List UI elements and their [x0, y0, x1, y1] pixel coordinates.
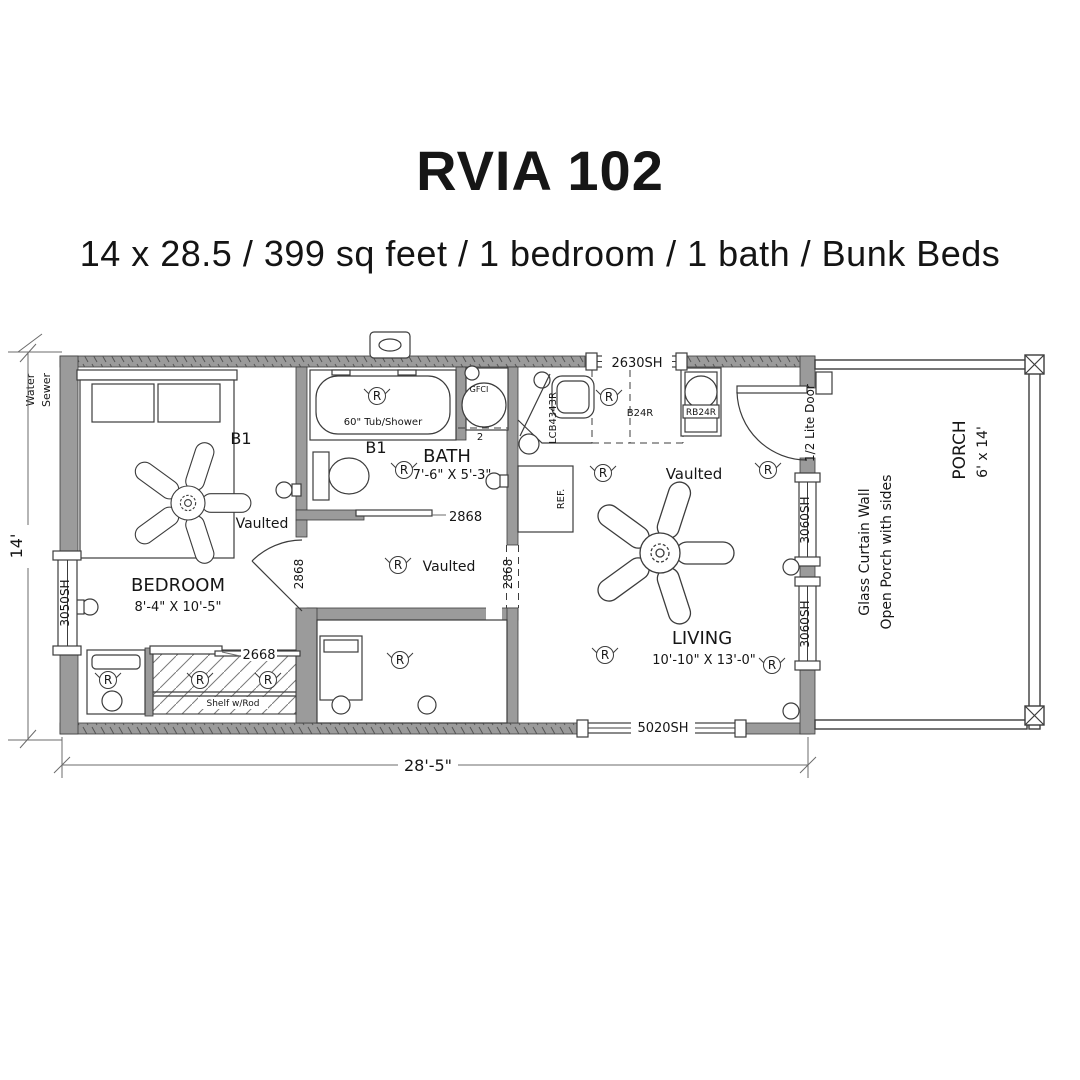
porch-size-label: 6' x 14' — [975, 426, 991, 478]
gfci-label: GFCI — [470, 385, 489, 394]
porch-label: PORCH — [950, 420, 970, 479]
bath-size-label: 7'-6" X 5'-3" — [413, 468, 492, 483]
fridge-label: REF. — [556, 489, 567, 510]
porch-post-top — [1025, 355, 1044, 374]
bedroom-vaulted-label: Vaulted — [236, 516, 289, 532]
bath-dim-note: 2 — [477, 432, 483, 443]
bath-door-label: 2868 — [449, 510, 482, 525]
hall: Vaulted 2868 — [385, 545, 519, 608]
kitchen-window: 2630SH — [586, 353, 687, 371]
closet: Shelf w/Rod 2668 — [150, 646, 300, 714]
closet-door-label: 2668 — [242, 648, 275, 663]
sewer-label: Sewer — [40, 373, 53, 408]
living-window-upper-label: 3060SH — [798, 496, 812, 543]
porch: Glass Curtain Wall Open Porch with sides… — [815, 355, 1044, 729]
bedroom-label: BEDROOM — [131, 575, 225, 596]
ceiling-fan-living — [594, 479, 734, 627]
living-vaulted-label: Vaulted — [666, 465, 723, 483]
living-size-label: 10'-10" X 13'-0" — [652, 653, 756, 668]
living-window-upper: 3060SH — [795, 473, 820, 566]
hall-vaulted-label: Vaulted — [423, 559, 476, 575]
range-cabinet-label: RB24R — [686, 408, 716, 418]
kitchen: LCB4343R B24R RB24R REF. — [518, 353, 721, 532]
living-window-lower-label: 3060SH — [798, 600, 812, 647]
sink-cabinet-label: LCB4343R — [548, 392, 559, 444]
receptacle — [387, 652, 413, 669]
bedroom: B1 Vaulted BEDROOM 8'-4" X 10'-5" 2868 — [53, 370, 306, 714]
height-dim-label: 14' — [7, 534, 26, 559]
tub: 60" Tub/Shower — [310, 370, 456, 440]
bath-b1-label: B1 — [365, 438, 386, 457]
receptacle — [590, 465, 616, 482]
base-cabinet-label: B24R — [627, 408, 654, 419]
receptacle — [596, 389, 622, 406]
bedroom-bed-label: B1 — [230, 429, 251, 448]
receptacle — [592, 647, 618, 664]
porch-post-bottom — [1025, 706, 1044, 725]
water-label: Water — [24, 373, 37, 406]
receptacle — [755, 462, 781, 479]
bath: 60" Tub/Shower GFCI 2 B1 BATH 7'-6" X 5'… — [276, 366, 508, 525]
living-window-lower: 3060SH — [795, 577, 820, 670]
tub-label: 60" Tub/Shower — [344, 417, 423, 428]
receptacle — [759, 657, 785, 674]
bath-label: BATH — [423, 446, 471, 467]
receptacle — [385, 557, 411, 574]
bedroom-door-label: 2868 — [292, 559, 306, 590]
hall-opening-label: 2868 — [501, 559, 515, 590]
roof-vent — [370, 332, 410, 358]
kitchen-sink: LCB4343R — [519, 372, 594, 454]
front-window: 5020SH — [577, 720, 746, 737]
entry-door-label: 1/2 Lite Door — [803, 384, 817, 462]
toilet — [313, 452, 369, 500]
bunk-room — [317, 620, 507, 723]
bedroom-door: 2868 — [252, 540, 306, 611]
floor-plan-drawing: R — [0, 0, 1080, 1080]
refrigerator: REF. — [518, 466, 573, 532]
porch-note2: Open Porch with sides — [879, 475, 895, 630]
entry-door: 1/2 Lite Door — [737, 372, 832, 462]
living-label: LIVING — [672, 628, 732, 649]
bath-pocket-door: 2868 — [356, 510, 482, 525]
porch-note1: Glass Curtain Wall — [857, 488, 873, 615]
range: RB24R — [681, 368, 721, 436]
bedroom-size-label: 8'-4" X 10'-5" — [134, 600, 221, 615]
bedroom-window-label: 3050SH — [58, 579, 72, 626]
closet-shelf-label: Shelf w/Rod — [207, 699, 260, 709]
bedroom-window: 3050SH — [53, 551, 81, 655]
floor-plan-page: RVIA 102 14 x 28.5 / 399 sq feet / 1 bed… — [0, 0, 1080, 1080]
kitchen-window-label: 2630SH — [611, 356, 662, 371]
front-window-label: 5020SH — [637, 721, 688, 736]
width-dim-label: 28'-5" — [404, 756, 452, 775]
